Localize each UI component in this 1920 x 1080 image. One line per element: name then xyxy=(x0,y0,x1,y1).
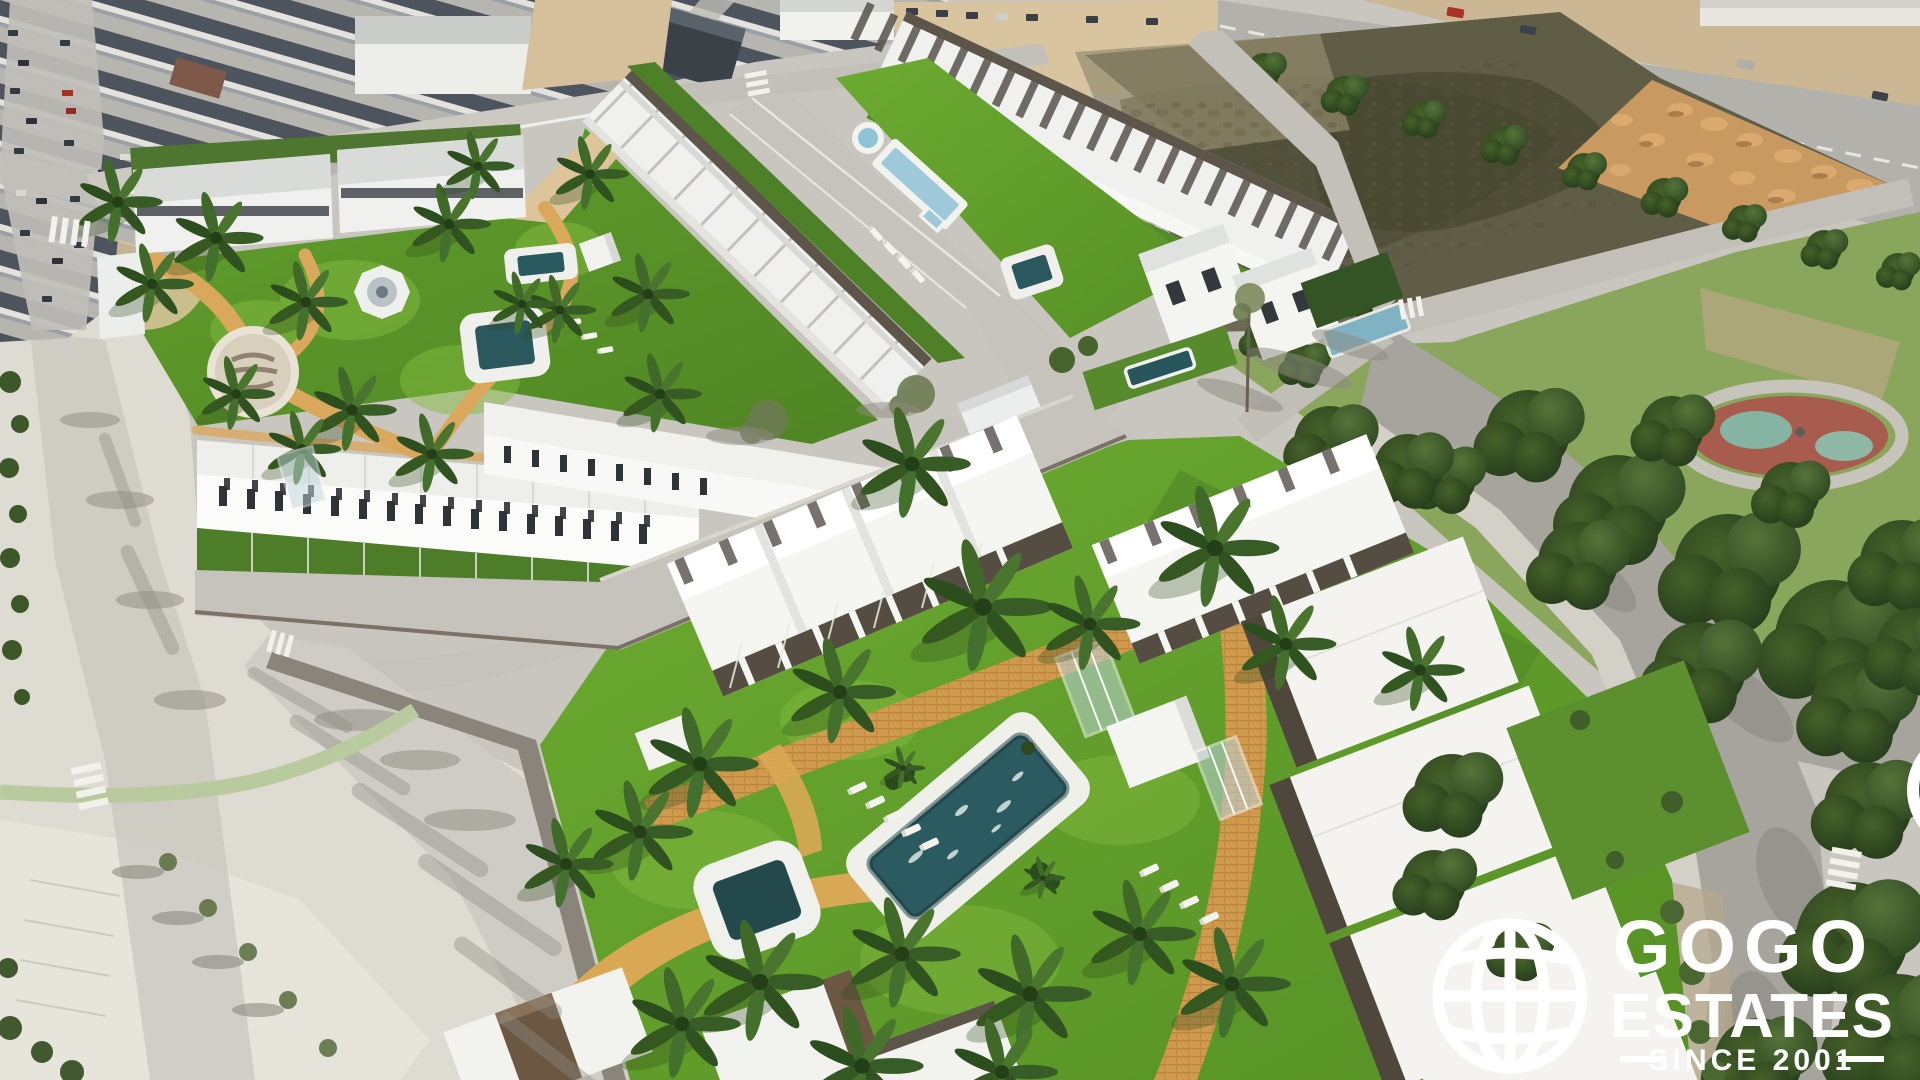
svg-text:ESTATES: ESTATES xyxy=(1610,982,1894,1051)
svg-text:GOGO: GOGO xyxy=(1613,905,1875,988)
svg-text:SINCE 2001: SINCE 2001 xyxy=(1649,1044,1856,1077)
